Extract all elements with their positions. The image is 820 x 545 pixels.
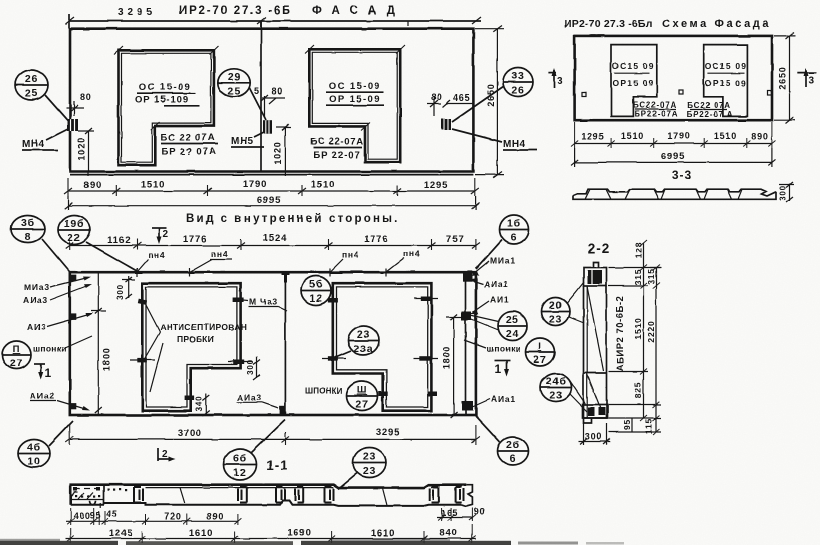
svg-text:22: 22 (67, 232, 80, 244)
svg-text:27: 27 (10, 358, 23, 370)
svg-text:25: 25 (25, 88, 38, 100)
svg-text:12: 12 (309, 293, 322, 305)
svg-text:26: 26 (511, 85, 524, 97)
svg-text:2220: 2220 (646, 320, 656, 342)
svg-text:МИа3: МИа3 (24, 282, 50, 292)
svg-text:шпонки: шпонки (487, 344, 521, 354)
svg-text:300: 300 (246, 359, 255, 375)
svg-text:БС 22 07А: БС 22 07А (161, 133, 216, 144)
svg-text:24: 24 (506, 328, 519, 340)
svg-text:23: 23 (363, 465, 376, 477)
svg-text:Ш: Ш (357, 385, 367, 396)
svg-text:ПРОБКИ: ПРОБКИ (177, 334, 215, 344)
svg-text:1510: 1510 (633, 317, 643, 339)
svg-text:пн4: пн4 (148, 250, 165, 260)
svg-text:315: 315 (646, 268, 656, 285)
svg-text:23: 23 (357, 329, 370, 341)
svg-text:ОС 15-09: ОС 15-09 (139, 82, 191, 93)
svg-text:3б: 3б (21, 217, 35, 229)
svg-text:825: 825 (633, 382, 643, 399)
svg-text:1776: 1776 (364, 234, 388, 245)
svg-text:1510: 1510 (311, 180, 335, 191)
svg-text:1790: 1790 (243, 179, 267, 190)
svg-text:1610: 1610 (371, 528, 395, 539)
svg-text:1510: 1510 (141, 180, 165, 191)
svg-text:400: 400 (73, 511, 90, 521)
svg-text:ИР2-70 27.3 -6Бл: ИР2-70 27.3 -6Бл (564, 18, 653, 30)
svg-text:БС22 07А: БС22 07А (687, 101, 731, 110)
svg-text:АИ1: АИ1 (490, 295, 509, 305)
svg-text:1800: 1800 (442, 346, 452, 369)
svg-text:19б: 19б (64, 218, 85, 230)
svg-text:45: 45 (106, 509, 118, 519)
svg-text:27: 27 (533, 354, 546, 366)
svg-text:ОР 15-09: ОР 15-09 (329, 94, 381, 105)
svg-text:80: 80 (272, 87, 284, 97)
svg-text:МН4: МН4 (503, 139, 526, 150)
svg-text:95: 95 (622, 419, 632, 430)
svg-text:1б: 1б (507, 218, 521, 230)
svg-text:3-3: 3-3 (672, 168, 692, 182)
svg-text:2650: 2650 (486, 83, 496, 106)
svg-text:1524: 1524 (262, 233, 286, 244)
svg-text:23: 23 (549, 314, 562, 326)
svg-text:Вид с внутренней стороны.: Вид с внутренней стороны. (186, 213, 400, 225)
svg-text:23: 23 (363, 451, 376, 463)
svg-text:3: 3 (809, 76, 815, 87)
svg-text:1690: 1690 (287, 528, 311, 539)
svg-text:3700: 3700 (178, 428, 202, 439)
svg-text:БР22-07А: БР22-07А (635, 110, 679, 119)
svg-text:шпонки: шпонки (33, 344, 67, 354)
svg-text:27: 27 (355, 399, 368, 411)
svg-text:2б: 2б (506, 439, 520, 451)
svg-text:МН5: МН5 (231, 136, 254, 147)
svg-text:6: 6 (510, 453, 517, 465)
svg-text:6б: 6б (233, 453, 247, 465)
svg-text:1510: 1510 (714, 131, 737, 141)
svg-text:720: 720 (164, 512, 181, 522)
svg-text:П: П (13, 344, 21, 355)
svg-text:БР 22-07: БР 22-07 (313, 150, 360, 161)
svg-text:10: 10 (27, 456, 40, 468)
svg-text:пн4: пн4 (403, 249, 420, 259)
svg-text:300: 300 (116, 284, 125, 300)
svg-text:ФАСАД: ФАСАД (312, 5, 405, 17)
svg-text:1790: 1790 (667, 131, 690, 141)
svg-text:БР22-07 А: БР22-07 А (687, 110, 734, 119)
svg-text:5: 5 (254, 86, 260, 96)
svg-text:ИР2-70 27.3 -6Б: ИР2-70 27.3 -6Б (179, 5, 292, 17)
svg-text:840: 840 (439, 528, 457, 539)
svg-text:1800: 1800 (102, 347, 112, 370)
svg-text:115: 115 (644, 418, 654, 434)
svg-text:12: 12 (233, 467, 246, 479)
svg-text:1162: 1162 (107, 235, 131, 246)
svg-text:33: 33 (511, 70, 524, 82)
svg-text:24б: 24б (546, 376, 567, 388)
svg-text:ОС15 09: ОС15 09 (612, 61, 654, 71)
svg-text:АИа3: АИа3 (23, 295, 48, 305)
svg-text:АИа1: АИа1 (484, 279, 509, 289)
svg-text:1020: 1020 (77, 137, 87, 160)
svg-text:315: 315 (633, 269, 643, 286)
svg-text:1610: 1610 (189, 528, 213, 539)
svg-text:1020: 1020 (273, 141, 283, 164)
svg-text:ОР15 09: ОР15 09 (705, 78, 747, 88)
svg-text:АНТИСЕПТИРОВАН: АНТИСЕПТИРОВАН (160, 322, 247, 332)
svg-text:М Ча3: М Ча3 (249, 297, 278, 307)
svg-text:2650: 2650 (778, 66, 788, 89)
svg-text:25: 25 (228, 86, 241, 98)
svg-text:6995: 6995 (257, 195, 281, 206)
svg-text:26: 26 (25, 73, 38, 85)
svg-text:1: 1 (45, 366, 52, 380)
svg-text:ОС 15-09: ОС 15-09 (329, 81, 381, 92)
svg-text:пн4: пн4 (342, 250, 359, 260)
svg-text:БР 2? 07А: БР 2? 07А (161, 147, 216, 158)
svg-text:890: 890 (206, 512, 223, 522)
svg-text:300: 300 (585, 432, 602, 442)
svg-text:АИ3: АИ3 (27, 322, 46, 332)
svg-text:МН4: МН4 (22, 139, 45, 150)
svg-text:ОС15 09: ОС15 09 (705, 61, 747, 71)
svg-text:пн4: пн4 (211, 249, 228, 259)
svg-text:БС22-07А: БС22-07А (633, 101, 677, 110)
svg-text:2: 2 (162, 449, 168, 460)
svg-text:АБИР2 70-6Б-2: АБИР2 70-6Б-2 (615, 296, 626, 372)
svg-text:3295: 3295 (376, 427, 400, 438)
svg-text:МИа1: МИа1 (490, 256, 516, 266)
svg-text:1245: 1245 (109, 528, 133, 539)
svg-text:23а: 23а (354, 343, 374, 355)
svg-text:1510: 1510 (621, 131, 644, 141)
svg-text:1295: 1295 (581, 132, 604, 142)
svg-text:5б: 5б (309, 279, 323, 291)
svg-text:890: 890 (84, 180, 102, 191)
svg-text:2: 2 (163, 229, 169, 240)
svg-text:I: I (538, 341, 541, 352)
svg-text:3295: 3295 (118, 7, 156, 18)
svg-text:1-1: 1-1 (266, 458, 289, 473)
svg-text:6: 6 (511, 232, 518, 244)
svg-text:ОР15 09: ОР15 09 (613, 78, 655, 88)
svg-text:8: 8 (25, 231, 32, 243)
svg-text:25: 25 (506, 314, 519, 326)
svg-text:АИа2: АИа2 (30, 391, 55, 401)
svg-text:6995: 6995 (661, 151, 685, 162)
svg-text:4б: 4б (27, 442, 41, 454)
svg-text:465: 465 (453, 93, 470, 103)
svg-text:АИа1: АИа1 (491, 394, 516, 404)
svg-text:ШПОНКИ: ШПОНКИ (305, 387, 343, 396)
svg-text:20: 20 (549, 300, 562, 312)
svg-text:757: 757 (446, 234, 464, 245)
svg-text:1776: 1776 (183, 234, 207, 245)
svg-text:3: 3 (557, 76, 563, 87)
svg-text:29: 29 (228, 71, 241, 83)
svg-text:АИа3: АИа3 (237, 393, 262, 403)
svg-text:Схема Фасада: Схема Фасада (662, 18, 771, 30)
svg-text:1: 1 (495, 362, 502, 376)
svg-text:1295: 1295 (424, 180, 448, 191)
svg-text:2-2: 2-2 (588, 241, 611, 256)
svg-text:23: 23 (549, 390, 562, 402)
svg-text:ОР 15-109: ОР 15-109 (135, 95, 189, 106)
svg-text:890: 890 (751, 132, 768, 142)
svg-text:340: 340 (195, 396, 204, 412)
svg-text:80: 80 (80, 92, 92, 102)
svg-text:БС 22-07А: БС 22-07А (310, 137, 364, 148)
